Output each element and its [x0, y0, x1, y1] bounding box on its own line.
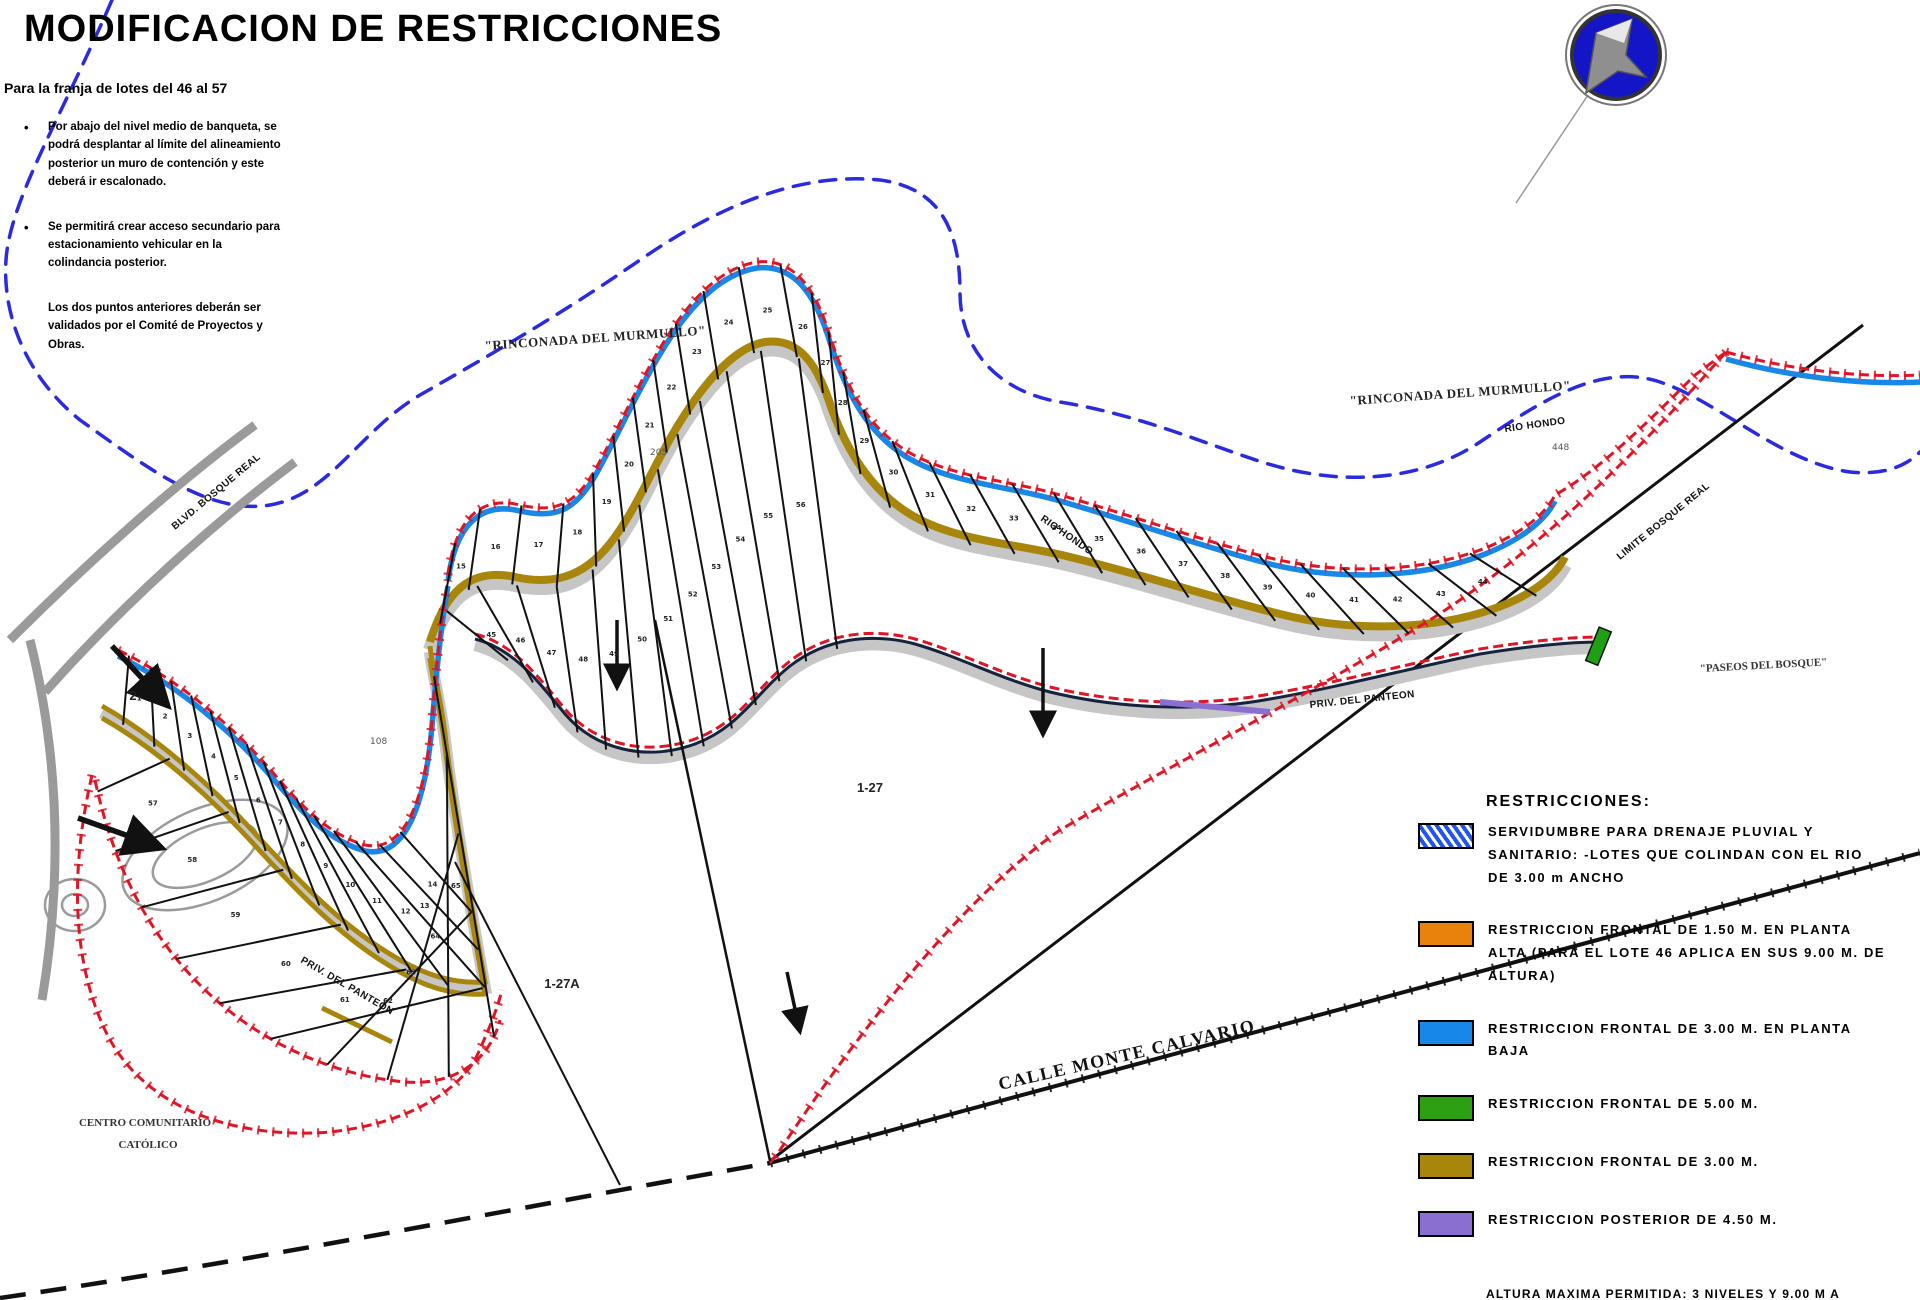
lot-number: 6 [256, 796, 261, 804]
lot-number: 47 [547, 649, 557, 657]
lot-number: 9 [323, 862, 328, 870]
lot-number: 60 [281, 960, 291, 968]
lot-line [98, 759, 170, 792]
lot-number: 33 [1009, 515, 1019, 523]
legend-item: SERVIDUMBRE PARA DRENAJE PLUVIAL Y SANIT… [1418, 821, 1888, 889]
lot-number: 40 [1306, 592, 1316, 600]
lot-number: 38 [1220, 572, 1230, 580]
label-centro-2: CATÓLICO [118, 1139, 178, 1151]
lot-line [447, 611, 508, 660]
lot-number: 4 [211, 752, 216, 760]
lot-number: 44 [1478, 578, 1488, 586]
lot-number: 59 [231, 911, 241, 919]
lot-line [619, 539, 639, 757]
lot-number: 11 [372, 897, 382, 905]
lot-line [1470, 553, 1536, 595]
swatch-gold [1418, 1153, 1474, 1179]
lot-line [677, 434, 732, 728]
drawing-sheet: 1516171819202122232425262728293031323334… [0, 0, 1920, 1300]
lot-number: 14 [428, 881, 438, 889]
note-item: Se permitirá crear acceso secundario par… [14, 218, 284, 273]
lot-number: 58 [187, 856, 197, 864]
lot-number: 65 [451, 882, 461, 890]
flow-arrows [78, 620, 1043, 1032]
lot-number: 43 [1436, 590, 1446, 598]
lot-number: 49 [609, 650, 619, 658]
lot-line [593, 473, 596, 566]
lot-line [633, 398, 646, 493]
lot-line [176, 925, 340, 959]
lot-number: 28 [838, 399, 848, 407]
lot-number: 41 [1349, 596, 1359, 604]
lot-number: 35 [1094, 535, 1104, 543]
lot-number: 16 [491, 543, 501, 551]
legend-item-label: RESTRICCION FRONTAL DE 3.00 M. EN PLANTA… [1488, 1018, 1888, 1064]
lot-number: 42 [1393, 595, 1403, 603]
lot-number: 63 [406, 969, 416, 977]
legend-item: RESTRICCION POSTERIOR DE 4.50 M. [1418, 1209, 1888, 1237]
lot-number: 13 [420, 902, 430, 910]
label-centro-1: CENTRO COMUNITARIO [79, 1117, 212, 1129]
label-rio-hondo-2: RIO HONDO [1504, 416, 1566, 435]
label-calle-monte-calvario: CALLE MONTE CALVARIO [996, 1015, 1257, 1094]
parcel-lines [455, 620, 770, 1185]
lot-number: 1 [137, 695, 142, 703]
label-rinconada-right: "RINCONADA DEL MURMULLO" [1349, 378, 1571, 408]
legend-item: RESTRICCION FRONTAL DE 5.00 M. [1418, 1093, 1888, 1121]
lot-number: 10 [346, 881, 356, 889]
legend-item-label: RESTRICCION FRONTAL DE 5.00 M. [1488, 1093, 1759, 1116]
lot-number: 39 [1263, 583, 1273, 591]
legend-item-label: RESTRICCION POSTERIOR DE 4.50 M. [1488, 1209, 1778, 1232]
lot-line [512, 505, 521, 584]
lot-line [739, 267, 754, 353]
swatch-orange [1418, 921, 1474, 947]
dim-108: 108 [370, 737, 387, 747]
lot-number: 46 [516, 636, 526, 644]
lot-line [700, 401, 756, 705]
lot-number: 22 [667, 384, 677, 392]
swatch-blue [1418, 1020, 1474, 1046]
lot-number: 61 [340, 996, 350, 1004]
lot-number: 57 [148, 799, 158, 807]
lot-number: 45 [486, 631, 496, 639]
lot-number: 36 [1136, 547, 1146, 555]
lot-number: 30 [889, 468, 899, 476]
legend-item-label: RESTRICCION FRONTAL DE 3.00 M. [1488, 1151, 1759, 1174]
lot-number: 26 [798, 323, 808, 331]
notes-block: Por abajo del nivel medio de banqueta, s… [14, 118, 284, 380]
lot-number: 8 [300, 841, 305, 849]
lot-number: 17 [534, 541, 544, 549]
lot-number: 15 [456, 562, 466, 570]
legend-item-label: SERVIDUMBRE PARA DRENAJE PLUVIAL Y SANIT… [1488, 821, 1888, 889]
lot-number: 5 [234, 774, 239, 782]
lot-number: 2 [163, 713, 168, 721]
boulevard-roads [10, 425, 304, 1000]
lot-number: 52 [688, 591, 698, 599]
lot-number: 27 [821, 359, 831, 367]
note-item: Los dos puntos anteriores deberán ser va… [14, 299, 284, 354]
lot-number: 54 [736, 536, 746, 544]
legend-footnote: ALTURA MAXIMA PERMITIDA: 3 NIVELES Y 9.0… [1486, 1283, 1886, 1300]
lot-number: 32 [966, 505, 976, 513]
lot-number: 19 [602, 498, 612, 506]
lot-number: 48 [578, 656, 588, 664]
lot-number: 64 [430, 932, 440, 940]
lot-number: 31 [925, 491, 935, 499]
sheet-subtitle: Para la franja de lotes del 46 al 57 [4, 80, 227, 96]
legend: RESTRICCIONES: SERVIDUMBRE PARA DRENAJE … [1418, 793, 1888, 1300]
lot-number: 53 [711, 563, 721, 571]
lot-number: 50 [637, 636, 647, 644]
lot-number: 3 [187, 732, 192, 740]
legend-item: RESTRICCION FRONTAL DE 1.50 M. EN PLANTA… [1418, 919, 1888, 987]
label-parcel-2: 2 [129, 688, 136, 703]
lot-number: 56 [796, 501, 806, 509]
lot-number: 37 [1178, 560, 1188, 568]
label-limite-bosque-real: LIMITE BOSQUE REAL [1615, 481, 1712, 563]
lot-number: 20 [624, 460, 634, 468]
north-arrow-icon [1516, 5, 1666, 203]
lot-line [150, 668, 154, 747]
lot-number: 29 [859, 437, 869, 445]
legend-item-label: RESTRICCION FRONTAL DE 1.50 M. EN PLANTA… [1488, 919, 1888, 987]
lot-number: 21 [645, 422, 655, 430]
lot-number: 24 [724, 319, 734, 327]
legend-item: RESTRICCION FRONTAL DE 3.00 M. [1418, 1151, 1888, 1179]
subdivision-roads [102, 341, 1600, 1042]
lot-line [613, 436, 624, 532]
lot-line [653, 360, 667, 453]
lot-number: 25 [763, 306, 773, 314]
dim-448: 448 [1552, 443, 1569, 453]
lot-line [593, 570, 606, 750]
lot-line [639, 505, 671, 756]
label-paseos: "PASEOS DEL BOSQUE" [1700, 656, 1828, 675]
sheet-title: MODIFICACION DE RESTRICCIONES [24, 8, 722, 51]
legend-item: RESTRICCION FRONTAL DE 3.00 M. EN PLANTA… [1418, 1018, 1888, 1064]
dim-205: 205 [650, 448, 667, 458]
legend-heading: RESTRICCIONES: [1486, 793, 1888, 811]
lot-line [123, 656, 129, 725]
note-item: Por abajo del nivel medio de banqueta, s… [14, 118, 284, 192]
lot-number: 7 [278, 819, 283, 827]
lot-number: 51 [663, 615, 673, 623]
swatch-purple [1418, 1211, 1474, 1237]
label-parcel-1-27: 1-27 [857, 780, 883, 795]
swatch-green [1418, 1095, 1474, 1121]
lot-number: 18 [572, 528, 582, 536]
label-rinconada-left: "RINCONADA DEL MURMULLO" [484, 323, 706, 353]
lot-number: 12 [401, 907, 411, 915]
lot-number: 55 [763, 512, 773, 520]
swatch-servidumbre-hatch [1418, 823, 1474, 849]
lot-number: 23 [692, 348, 702, 356]
label-parcel-1-27a: 1-27A [544, 976, 580, 991]
